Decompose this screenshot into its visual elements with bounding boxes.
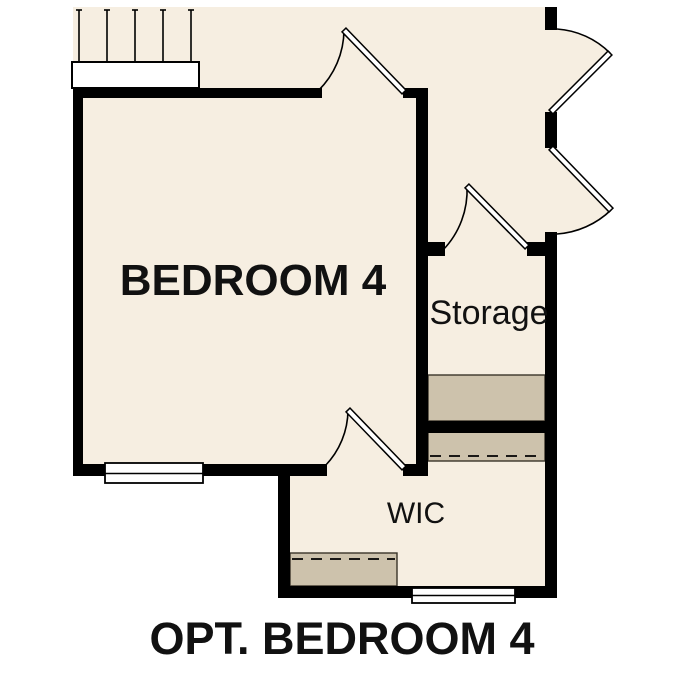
wall-right-middle-stub xyxy=(545,112,557,148)
bedroom-window-symbol xyxy=(105,463,203,483)
wic-left-shelf xyxy=(290,553,397,586)
plan-caption: OPT. BEDROOM 4 xyxy=(149,613,534,664)
floor-plan: BEDROOM 4 Storage WIC OPT. BEDROOM 4 xyxy=(0,0,687,687)
wic-window-symbol xyxy=(412,588,515,603)
wall-right-top-stub xyxy=(545,7,557,30)
storage-shelf xyxy=(428,375,545,421)
wall-storage-top-left-stub xyxy=(428,242,445,256)
wall-bedroom-right xyxy=(416,88,428,476)
room-label-wic: WIC xyxy=(387,497,445,530)
wall-storage-bottom xyxy=(416,421,557,433)
room-label-bedroom4: BEDROOM 4 xyxy=(120,256,387,305)
wall-wic-left xyxy=(278,464,290,598)
stair-landing xyxy=(72,62,199,88)
wall-bedroom-left xyxy=(73,88,83,476)
room-label-storage: Storage xyxy=(429,294,548,332)
floor-hallway-column xyxy=(428,7,557,256)
wall-right-lower xyxy=(545,232,557,598)
wall-bedroom-top xyxy=(73,88,322,98)
